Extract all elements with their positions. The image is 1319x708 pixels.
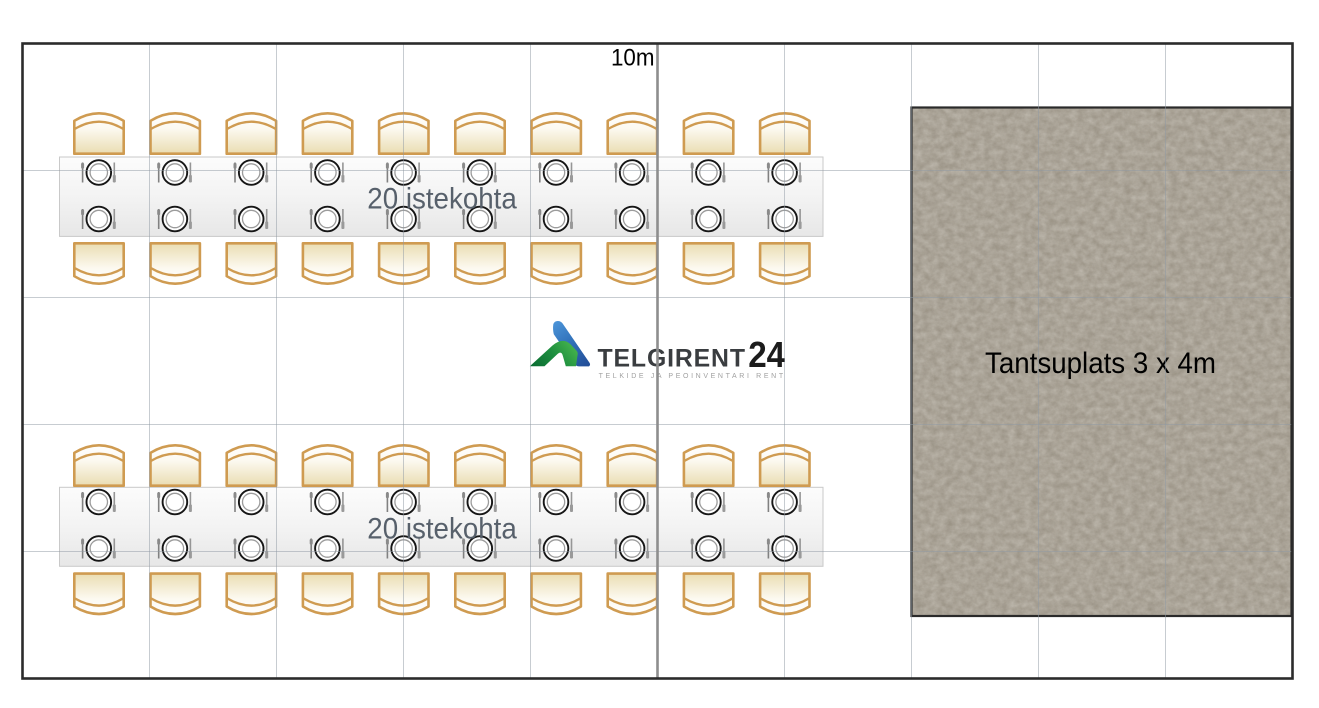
svg-text:TELKIDE JA PEOINVENTARI RENT: TELKIDE JA PEOINVENTARI RENT (599, 373, 784, 380)
svg-text:20 istekohta: 20 istekohta (367, 183, 517, 216)
svg-text:10m: 10m (611, 45, 655, 72)
svg-text:24: 24 (748, 334, 785, 375)
svg-text:TELGIRENT: TELGIRENT (598, 345, 746, 372)
svg-text:20 istekohta: 20 istekohta (367, 513, 517, 546)
svg-text:Tantsuplats 3 x 4m: Tantsuplats 3 x 4m (985, 347, 1216, 380)
